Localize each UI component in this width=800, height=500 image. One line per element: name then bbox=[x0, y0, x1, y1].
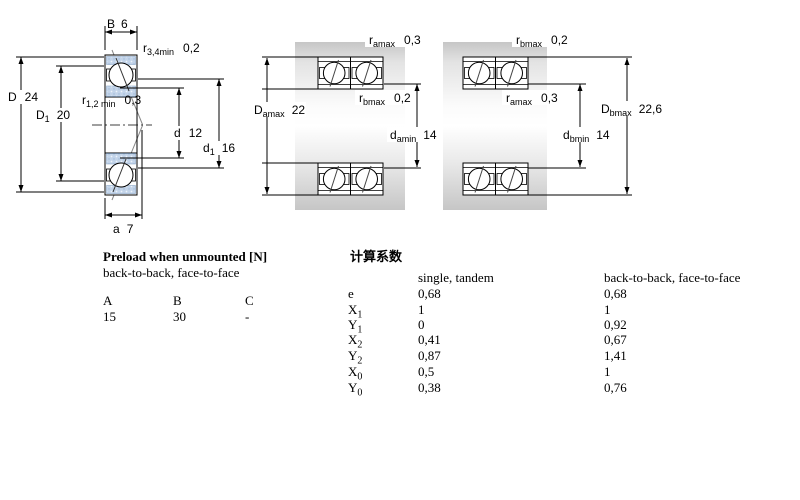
factor-single-value: 0,87 bbox=[418, 348, 441, 364]
dim-label-B: B6 bbox=[107, 17, 128, 31]
dim-D bbox=[16, 57, 104, 192]
dim-Damax bbox=[265, 58, 270, 194]
preload-col-B: B bbox=[173, 294, 182, 308]
factor-single-value: 0,38 bbox=[418, 380, 441, 396]
factor-single-value: 0,5 bbox=[418, 364, 434, 380]
factors-row: Y1 0 0,92 bbox=[348, 317, 788, 333]
bearing-pair-b-top bbox=[463, 57, 528, 89]
factors-table-title: 计算系数 bbox=[350, 250, 402, 264]
factor-paired-value: 0,76 bbox=[604, 380, 627, 396]
factor-single-value: 0,68 bbox=[418, 286, 441, 302]
factors-row: X1 1 1 bbox=[348, 302, 788, 318]
factor-symbol: X2 bbox=[348, 332, 362, 348]
single-bearing-section bbox=[92, 50, 152, 200]
factor-paired-value: 1 bbox=[604, 364, 611, 380]
bearing-drawing: B6 r3,4min0,2 D24 D120 r1,2 min0,3 d12 d… bbox=[0, 0, 800, 248]
inner-ring-bottom bbox=[107, 154, 136, 165]
preload-table-subtitle: back-to-back, face-to-face bbox=[103, 266, 239, 280]
preload-col-A: A bbox=[103, 294, 112, 308]
dim-label-a: a7 bbox=[113, 222, 134, 236]
factors-row: Y2 0,87 1,41 bbox=[348, 348, 788, 364]
dim-Dbmax bbox=[625, 58, 630, 194]
dim-dbmin bbox=[578, 84, 583, 167]
factors-row: e 0,68 0,68 bbox=[348, 286, 788, 302]
bearing-pair-a-top bbox=[318, 57, 383, 89]
mounted-pair-a bbox=[262, 42, 421, 210]
bearing-pair-a-bottom bbox=[318, 163, 383, 195]
factor-symbol: X1 bbox=[348, 302, 362, 318]
mounted-pair-b bbox=[443, 42, 632, 210]
factor-paired-value: 1 bbox=[604, 302, 611, 318]
factor-paired-value: 1,41 bbox=[604, 348, 627, 364]
preload-value-C: - bbox=[245, 310, 249, 324]
factor-paired-value: 0,92 bbox=[604, 317, 627, 333]
dim-label-r34: r3,4min0,2 bbox=[143, 41, 200, 57]
factor-symbol: X0 bbox=[348, 364, 362, 380]
factors-col1-header: single, tandem bbox=[418, 271, 494, 285]
preload-value-A: 15 bbox=[103, 310, 116, 324]
ball-top bbox=[109, 63, 133, 87]
factor-paired-value: 0,68 bbox=[604, 286, 627, 302]
factor-symbol: Y0 bbox=[348, 380, 362, 396]
factor-paired-value: 0,67 bbox=[604, 332, 627, 348]
factors-row: X2 0,41 0,67 bbox=[348, 332, 788, 348]
factor-single-value: 0 bbox=[418, 317, 425, 333]
factor-single-value: 0,41 bbox=[418, 332, 441, 348]
factor-symbol: e bbox=[348, 286, 354, 302]
bearing-pair-b-bottom bbox=[463, 163, 528, 195]
factors-col2-header: back-to-back, face-to-face bbox=[604, 271, 740, 285]
ball-bottom bbox=[109, 163, 133, 187]
factors-row: X0 0,5 1 bbox=[348, 364, 788, 380]
factor-symbol: Y2 bbox=[348, 348, 362, 364]
preload-value-B: 30 bbox=[173, 310, 186, 324]
factor-single-value: 1 bbox=[418, 302, 425, 318]
preload-table-title: Preload when unmounted [N] bbox=[103, 250, 267, 264]
dim-D1 bbox=[56, 66, 104, 181]
dim-label-d: d12 bbox=[174, 126, 202, 140]
preload-col-C: C bbox=[245, 294, 254, 308]
factor-symbol: Y1 bbox=[348, 317, 362, 333]
factors-row: Y0 0,38 0,76 bbox=[348, 380, 788, 396]
bearing-datasheet: B6 r3,4min0,2 D24 D120 r1,2 min0,3 d12 d… bbox=[0, 0, 800, 500]
